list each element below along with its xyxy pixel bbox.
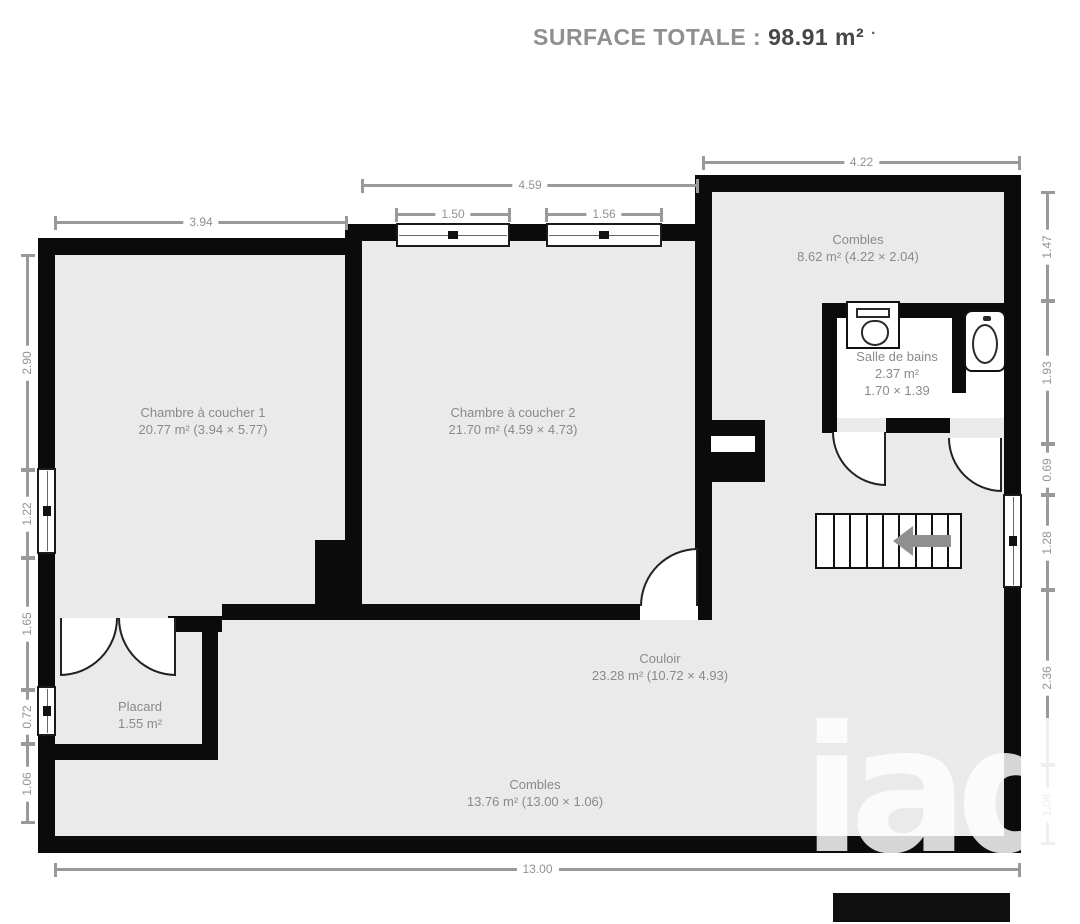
window-icon-left-2 <box>37 686 56 736</box>
wall-couloir-top <box>222 604 712 620</box>
toilet-bowl <box>861 320 889 346</box>
room-name: Combles <box>797 231 919 248</box>
room-details: 20.77 m² (3.94 × 5.77) <box>139 421 268 438</box>
window-handle-dot <box>599 231 609 239</box>
dimension-value: 0.69 <box>1040 452 1054 487</box>
dimension-value: 1.47 <box>1040 229 1054 264</box>
wall-bathroom-left <box>822 303 837 433</box>
iad-logo-watermark: iad <box>802 704 1069 879</box>
dimension-top-4-22: 4.22 <box>703 161 1020 164</box>
dimension-window-1-50: 1.50 <box>396 213 510 216</box>
wall-top-combles <box>695 175 1021 192</box>
dimension-left-0-72: 0.72 <box>26 690 29 744</box>
dimension-value: 2.90 <box>20 345 34 380</box>
floor-plan: SURFACE TOTALE : 98.91 m² · <box>0 0 1080 924</box>
dimension-left-2-90: 2.90 <box>26 255 29 470</box>
stairs-direction-arrow-icon <box>893 526 955 556</box>
room-details: 23.28 m² (10.72 × 4.93) <box>592 667 728 684</box>
wall-placard-bottom <box>38 744 218 760</box>
window-icon-left-1 <box>37 468 56 554</box>
window-icon-top-2 <box>546 223 662 247</box>
dimension-top-3-94: 3.94 <box>55 221 347 224</box>
iad-logo-tagline-bar <box>833 893 1010 922</box>
room-label-placard: Placard 1.55 m² <box>118 698 162 732</box>
dimension-value: 1.50 <box>435 207 470 221</box>
room-label-combles-haut: Combles 8.62 m² (4.22 × 2.04) <box>797 231 919 265</box>
room-name: Couloir <box>592 650 728 667</box>
page-title: SURFACE TOTALE : 98.91 m² · <box>533 24 877 51</box>
window-icon-right-1 <box>1003 494 1022 588</box>
dimension-value: 1.22 <box>20 496 34 531</box>
wall-between-chambres <box>345 238 362 556</box>
dimension-left-1-22: 1.22 <box>26 470 29 558</box>
wall-placard-right <box>202 618 218 760</box>
washbasin-bowl <box>972 324 998 364</box>
dimension-window-1-56: 1.56 <box>546 213 662 216</box>
room-label-combles-bas: Combles 13.76 m² (13.00 × 1.06) <box>467 776 603 810</box>
dimension-left-1-06: 1.06 <box>26 744 29 823</box>
dimension-value: 1.06 <box>20 766 34 801</box>
wall-top-chambre1 <box>38 238 362 255</box>
room-label-chambre1: Chambre à coucher 1 20.77 m² (3.94 × 5.7… <box>139 404 268 438</box>
doorway-chambre2 <box>640 604 698 620</box>
dimension-value: 1.93 <box>1040 355 1054 390</box>
arrow-shaft <box>913 535 951 547</box>
title-dot: · <box>871 25 877 42</box>
room-label-couloir: Couloir 23.28 m² (10.72 × 4.93) <box>592 650 728 684</box>
stair-tread <box>866 515 868 567</box>
dimension-top-4-59: 4.59 <box>362 184 698 187</box>
window-handle-dot <box>43 506 51 516</box>
surface-total-label: SURFACE TOTALE : <box>533 24 761 50</box>
room-name: Placard <box>118 698 162 715</box>
dimension-right-1-28: 1.28 <box>1046 495 1049 590</box>
dimension-value: 0.72 <box>20 699 34 734</box>
room-label-chambre2: Chambre à coucher 2 21.70 m² (4.59 × 4.7… <box>449 404 578 438</box>
dimension-value: 13.00 <box>516 862 558 876</box>
room-details: 8.62 m² (4.22 × 2.04) <box>797 248 919 265</box>
washbasin-faucet-dot <box>983 316 991 321</box>
room-details: 21.70 m² (4.59 × 4.73) <box>449 421 578 438</box>
room-name: Chambre à coucher 1 <box>139 404 268 421</box>
washbasin-icon <box>964 310 1006 372</box>
room-area: 1.55 m² <box>118 715 162 732</box>
dimension-value: 4.59 <box>512 178 547 192</box>
arrow-head <box>893 526 913 556</box>
room-name: Combles <box>467 776 603 793</box>
dimension-value: 1.56 <box>586 207 621 221</box>
dimension-value: 1.65 <box>20 606 34 641</box>
window-handle-dot <box>1009 536 1017 546</box>
window-handle-dot <box>448 231 458 239</box>
wall-chambre2-right <box>695 175 712 612</box>
room-area: 2.37 m² <box>856 365 938 382</box>
dimension-value: 1.28 <box>1040 525 1054 560</box>
wall-bathroom-bottom <box>886 418 950 433</box>
stair-tread <box>882 515 884 567</box>
surface-total-value: 98.91 m² <box>768 24 864 50</box>
wall-door-stub <box>168 616 222 632</box>
stair-tread <box>833 515 835 567</box>
room-name: Chambre à coucher 2 <box>449 404 578 421</box>
toilet-tank <box>856 308 890 318</box>
dimension-right-1-93: 1.93 <box>1046 301 1049 444</box>
room-name: Salle de bains <box>856 348 938 365</box>
toilet-icon <box>846 301 900 349</box>
window-handle-dot <box>43 706 51 716</box>
chimney-duct-slot <box>711 436 755 452</box>
dimension-right-0-69: 0.69 <box>1046 444 1049 495</box>
stair-tread <box>849 515 851 567</box>
dimension-value: 3.94 <box>183 215 218 229</box>
dimension-value: 4.22 <box>844 155 879 169</box>
room-details: 13.76 m² (13.00 × 1.06) <box>467 793 603 810</box>
dimension-left-1-65: 1.65 <box>26 558 29 690</box>
room-dims: 1.70 × 1.39 <box>856 382 938 399</box>
room-label-salle-de-bains: Salle de bains 2.37 m² 1.70 × 1.39 <box>856 348 938 399</box>
dimension-right-1-47: 1.47 <box>1046 192 1049 301</box>
window-icon-top-1 <box>396 223 510 247</box>
